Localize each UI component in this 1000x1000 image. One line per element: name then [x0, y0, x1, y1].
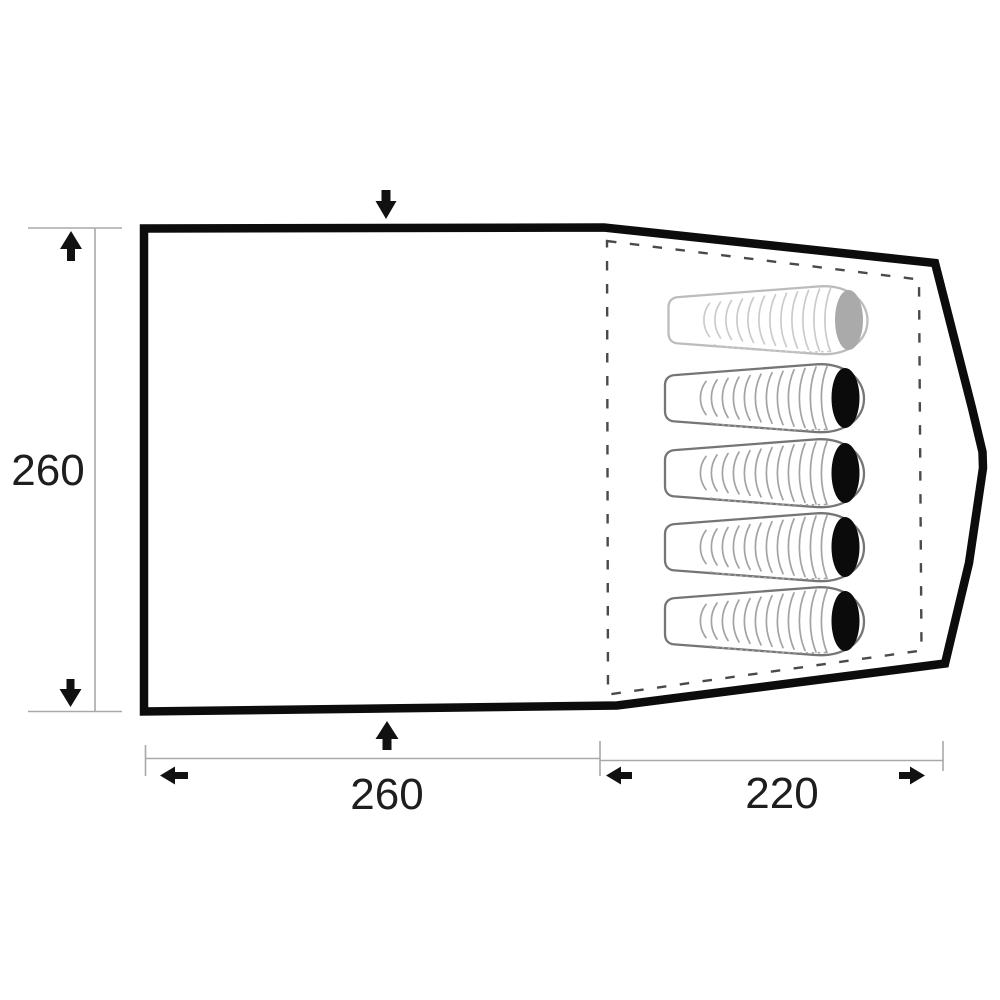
svg-text:220: 220: [745, 769, 818, 818]
svg-text:260: 260: [350, 770, 423, 819]
svg-text:260: 260: [11, 446, 84, 495]
